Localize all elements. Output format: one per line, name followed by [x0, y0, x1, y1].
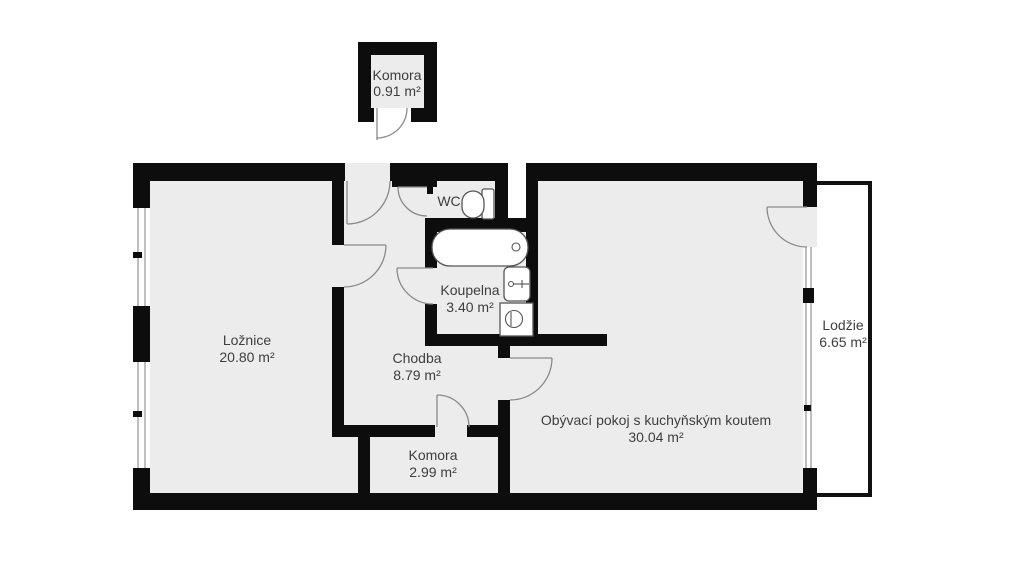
room-label-area: 30.04 m²: [628, 429, 684, 445]
wall: [817, 181, 872, 185]
room-label-area: 6.65 m²: [819, 334, 867, 350]
sink: [504, 267, 530, 301]
wall: [358, 437, 370, 493]
floor-plan-drawing: Komora 0.91 m² WC Koupelna 3.40 m² Ložni…: [0, 0, 1024, 576]
wall: [133, 493, 817, 510]
wall: [133, 306, 150, 362]
room-label-name: Komora: [372, 67, 421, 83]
window-lodzie: [803, 247, 817, 468]
window-mullion: [133, 411, 142, 417]
window-left-bottom: [133, 362, 150, 468]
wall: [133, 163, 345, 181]
wall: [498, 346, 510, 358]
floor-plan: Komora 0.91 m² WC Koupelna 3.40 m² Ložni…: [0, 0, 1024, 576]
wall: [392, 181, 437, 187]
window-mullion: [804, 405, 811, 411]
washing-machine: [500, 303, 533, 336]
wall: [498, 400, 510, 493]
room-label-name: Chodba: [392, 350, 441, 366]
room-label-name: WC: [437, 193, 460, 209]
room-label-name: Ložnice: [223, 332, 271, 348]
room-label-area: 2.99 m²: [409, 464, 457, 480]
wall: [390, 163, 508, 181]
window-mullion: [133, 252, 142, 258]
room-label-area: 8.79 m²: [393, 367, 441, 383]
wall: [467, 425, 510, 437]
wall: [803, 468, 817, 493]
shaft-slot: [508, 163, 526, 225]
room-label-area: 0.91 m²: [373, 83, 421, 99]
room-label-area: 3.40 m²: [446, 299, 494, 315]
room-label-area: 20.80 m²: [219, 349, 275, 365]
toilet: [462, 189, 494, 219]
bathtub: [432, 229, 528, 266]
room-label-name: Koupelna: [440, 282, 499, 298]
wall: [803, 181, 817, 207]
wall: [332, 425, 435, 437]
wall: [817, 493, 872, 497]
window-mullion: [803, 288, 814, 303]
wall: [332, 287, 344, 425]
window-left-top: [133, 208, 150, 306]
room-label-name: Obývací pokoj s kuchyňským koutem: [541, 412, 771, 428]
wall: [427, 187, 433, 194]
wall: [868, 181, 872, 497]
room-label-name: Komora: [408, 447, 457, 463]
wall: [332, 181, 344, 245]
room-label-name: Lodžie: [822, 317, 863, 333]
wall: [526, 163, 817, 181]
wall: [133, 163, 150, 208]
wall: [495, 163, 508, 225]
